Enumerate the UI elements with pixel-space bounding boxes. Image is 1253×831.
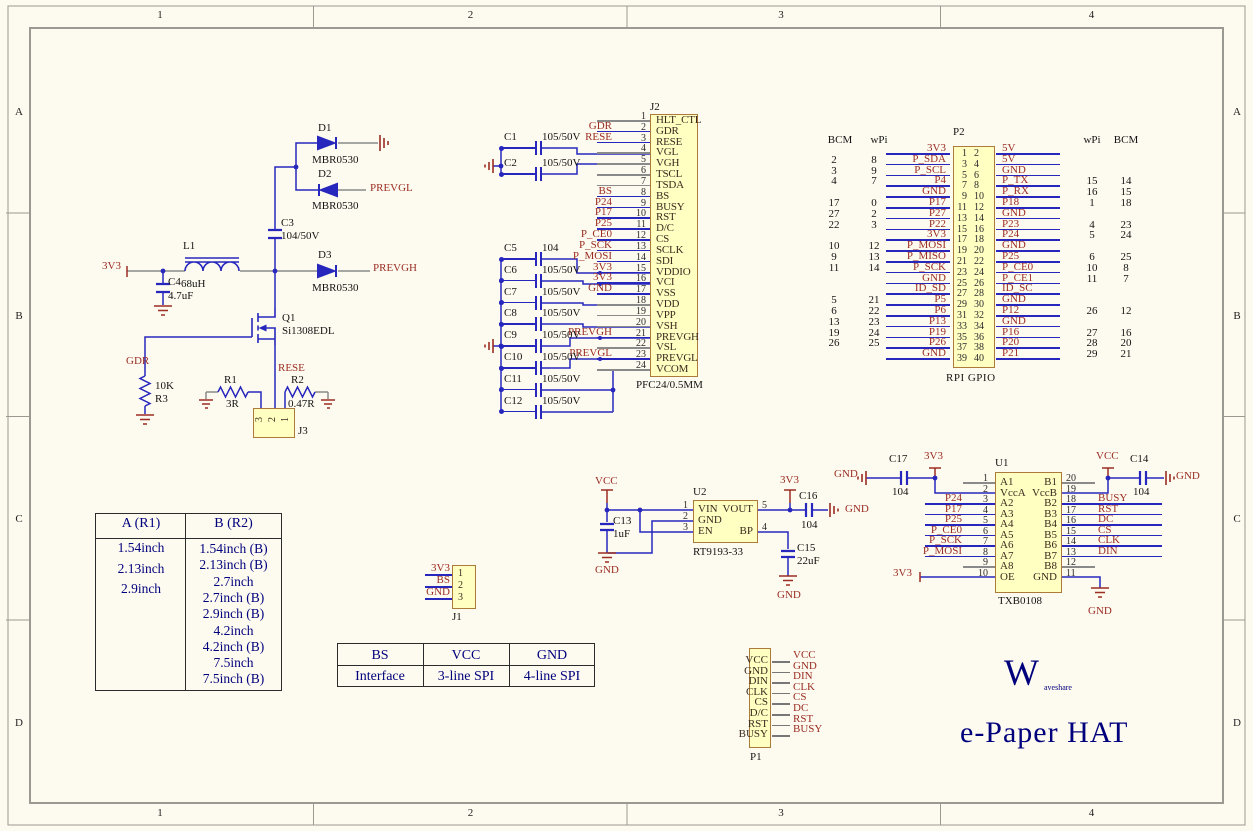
designator-u2: U2	[693, 487, 706, 498]
value-r1: 3R	[226, 399, 239, 410]
net-label-3v3-u2: 3V3	[780, 475, 799, 486]
capacitor-left-wire	[501, 258, 535, 260]
capacitor-value: 105/50V	[542, 132, 581, 143]
size-option-b: 2.13inch (B)	[186, 557, 281, 573]
frame-column-label-bottom: 2	[457, 807, 485, 819]
frame-row-label-right: D	[1227, 717, 1247, 729]
frame-row-label-left: C	[9, 513, 29, 525]
net-label-gnd-c17: GND	[834, 469, 858, 480]
u2-right-pin-number: 5	[762, 500, 767, 511]
frame-column-label-top: 1	[146, 9, 174, 21]
frame-row-label-right: A	[1227, 106, 1247, 118]
u1-right-pin-row: 11 GND	[1040, 567, 1220, 589]
capacitor-designator: C11	[504, 374, 522, 385]
j2-pin-name: VCOM	[656, 364, 688, 375]
capacitor-left-wire	[501, 345, 535, 347]
size-option-a: 2.9inch	[97, 581, 185, 597]
j3-pin-number: 2	[267, 417, 278, 422]
capacitor-left-wire	[501, 323, 535, 325]
capacitor-plate	[540, 405, 542, 419]
capacitor-value: 105/50V	[542, 308, 581, 319]
size-option-a: 2.13inch	[97, 561, 185, 577]
size-option-b: 2.9inch (B)	[186, 606, 281, 622]
connector-j3-body	[253, 408, 295, 438]
j1-net-label: GND	[426, 587, 450, 598]
frame-column-label-bottom: 4	[1078, 807, 1106, 819]
u1-right-net-label: DIN	[1098, 546, 1118, 557]
capacitor-left-wire	[501, 147, 535, 149]
bs-table-header-cell: BS	[337, 648, 423, 664]
j3-pin-number: 1	[280, 417, 291, 422]
u2-right-pin-row: 4 BP	[745, 521, 835, 543]
designator-r1: R1	[224, 375, 237, 386]
u2-right-pin-name: BP	[740, 526, 753, 537]
p2-bcm-right: 21	[1112, 349, 1140, 360]
designator-c15: C15	[797, 543, 815, 554]
capacitor-designator: C10	[504, 352, 522, 363]
u1-right-pin-number: 11	[1066, 568, 1076, 579]
capacitor-value: 105/50V	[542, 352, 581, 363]
value-u2: RT9193-33	[693, 547, 743, 558]
capacitor-plate	[535, 167, 537, 181]
net-label-vcc-u1: VCC	[1096, 451, 1119, 462]
designator-r3: R3	[155, 394, 168, 405]
value-u1: TXB0108	[998, 596, 1042, 607]
value-c3: 104/50V	[281, 231, 320, 242]
bs-table-value-cell: Interface	[337, 669, 423, 685]
schematic-sheet: 3V3 C4 4.7uF L1 68uH C3 104/50V D1 MBR05…	[0, 0, 1253, 831]
sheet-title: e-Paper HAT	[960, 716, 1128, 750]
frame-column-label-bottom: 1	[146, 807, 174, 819]
bs-table-value-cell: 4-line SPI	[509, 669, 595, 685]
size-option-b: 2.7inch	[186, 574, 281, 590]
capacitor-plate	[535, 141, 537, 155]
capacitor-designator: C9	[504, 330, 517, 341]
u1-left-pin-name: OE	[1000, 572, 1015, 583]
frame-column-label-top: 3	[767, 9, 795, 21]
net-label-gnd-c13: GND	[595, 565, 619, 576]
value-l1: 68uH	[181, 279, 205, 290]
capacitor-left-wire	[501, 411, 535, 413]
net-label-3v3-in: 3V3	[102, 261, 121, 272]
capacitor-left-wire	[501, 389, 535, 391]
capacitor-designator: C2	[504, 158, 517, 169]
j3-pin-number: 3	[254, 417, 265, 422]
frame-row-label-right: C	[1227, 513, 1247, 525]
capacitor-designator: C12	[504, 396, 522, 407]
p2-wire-left	[886, 358, 950, 360]
net-label-3v3-u1: 3V3	[924, 451, 943, 462]
size-option-b: 7.5inch	[186, 655, 281, 671]
designator-c4: C4	[168, 277, 181, 288]
capacitor-designator: C6	[504, 265, 517, 276]
capacitor-plate	[540, 141, 542, 155]
cap-bank1-row: C2 105/50V	[480, 158, 555, 188]
p2-wpi-right: 29	[1078, 349, 1106, 360]
size-table-header-a: A (R1)	[97, 518, 185, 529]
size-option-a: 1.54inch	[97, 540, 185, 556]
size-option-b: 1.54inch (B)	[186, 541, 281, 557]
j1-net-label: 3V3	[431, 563, 450, 574]
p1-net-label: BUSY	[793, 724, 822, 735]
net-label-gnd-c16: GND	[845, 504, 869, 515]
size-option-b: 4.2inch	[186, 623, 281, 639]
cap-bank2-row: C12 105/50V	[480, 396, 555, 426]
inductor-symbol	[185, 258, 239, 271]
designator-c17: C17	[889, 454, 907, 465]
u2-left-pin-name: EN	[698, 526, 713, 537]
designator-j3: J3	[298, 426, 308, 437]
j2-pin-wire	[597, 369, 650, 371]
net-label-prevgh: PREVGH	[373, 263, 417, 274]
capacitor-left-wire	[501, 173, 535, 175]
p1-pin-stub	[772, 735, 790, 737]
u1-left-pin-number: 10	[970, 568, 988, 579]
size-option-b: 2.7inch (B)	[186, 590, 281, 606]
capacitor-value: 105/50V	[542, 396, 581, 407]
net-label-prevgl: PREVGL	[370, 183, 413, 194]
designator-p1: P1	[750, 752, 762, 763]
j1-pin-wire	[425, 598, 452, 600]
capacitor-left-wire	[501, 302, 535, 304]
j1-pin-number: 3	[458, 592, 463, 603]
p2-net-right: P21	[1002, 348, 1019, 359]
designator-q1: Q1	[282, 313, 295, 324]
bs-table-value-cell: 3-line SPI	[423, 669, 509, 685]
brand-logo-w: W	[1004, 652, 1039, 695]
capacitor-designator: C7	[504, 287, 517, 298]
capacitor-plate	[535, 405, 537, 419]
p2-pin-row: GND 39 40 P21 29 21	[810, 348, 1140, 370]
net-label-gdr: GDR	[126, 356, 149, 367]
j1-pin-row: GND 3	[400, 588, 480, 610]
capacitor-left-wire	[501, 280, 535, 282]
value-d3: MBR0530	[312, 283, 358, 294]
value-d1: MBR0530	[312, 155, 358, 166]
frame-row-label-left: A	[9, 106, 29, 118]
capacitor-designator: C8	[504, 308, 517, 319]
frame-row-label-left: B	[9, 310, 29, 322]
size-option-b: 4.2inch (B)	[186, 639, 281, 655]
value-c4: 4.7uF	[168, 291, 193, 302]
capacitor-value: 105/50V	[542, 374, 581, 385]
p2-pin-even: 40	[974, 353, 992, 364]
value-r2: 0.47R	[288, 399, 315, 410]
frame-column-label-bottom: 3	[767, 807, 795, 819]
p1-pin-row: BUSY BUSY	[700, 725, 830, 747]
mosfet-symbol	[252, 308, 275, 345]
capacitor-designator: C5	[504, 243, 517, 254]
capacitor-left-wire	[501, 367, 535, 369]
j1-net-label: BS	[437, 575, 450, 586]
bs-table-divider-h	[337, 665, 595, 666]
designator-d1: D1	[318, 123, 331, 134]
bs-table-header-cell: GND	[509, 648, 595, 664]
net-label-gnd-c15: GND	[777, 590, 801, 601]
value-d2: MBR0530	[312, 201, 358, 212]
frame-row-label-left: D	[9, 717, 29, 729]
u2-left-pin-row: 3 EN	[600, 521, 730, 543]
capacitor-value: 104	[542, 243, 559, 254]
u1-right-pin-name: GND	[1033, 572, 1057, 583]
designator-l1: L1	[183, 241, 195, 252]
size-table-header-b: B (R2)	[186, 518, 281, 529]
capacitor-plate	[540, 167, 542, 181]
brand-logo-rest: aveshare	[1044, 683, 1072, 692]
value-r3: 10K	[155, 381, 174, 392]
designator-r2: R2	[291, 375, 304, 386]
capacitor-value: 105/50V	[542, 287, 581, 298]
designator-c3: C3	[281, 218, 294, 229]
value-q1: Si1308EDL	[282, 326, 335, 337]
capacitor-value: 105/50V	[542, 158, 581, 169]
value-j2-footprint: PFC24/0.5MM	[636, 380, 703, 391]
bs-table-header-cell: VCC	[423, 648, 509, 664]
capacitor-value: 105/50V	[542, 265, 581, 276]
designator-d2: D2	[318, 169, 331, 180]
u2-right-pin-name: VOUT	[722, 504, 753, 515]
net-label-vcc-u2: VCC	[595, 476, 618, 487]
size-table-divider-h	[95, 538, 282, 539]
frame-column-label-top: 2	[457, 9, 485, 21]
size-option-b: 7.5inch (B)	[186, 671, 281, 687]
designator-p2: P2	[953, 127, 965, 138]
designator-u1: U1	[995, 458, 1008, 469]
u2-right-pin-row: 5 VOUT	[745, 499, 835, 521]
frame-column-label-top: 4	[1078, 9, 1106, 21]
capacitor-value: 105/50V	[542, 330, 581, 341]
frame-row-label-right: B	[1227, 310, 1247, 322]
designator-j1: J1	[452, 612, 462, 623]
p1-pin-name: BUSY	[739, 729, 768, 740]
u2-right-pin-number: 4	[762, 522, 767, 533]
label-rpi-gpio: RPI GPIO	[946, 373, 996, 384]
net-label-rese: RESE	[278, 363, 305, 374]
designator-c14: C14	[1130, 454, 1148, 465]
designator-d3: D3	[318, 250, 331, 261]
value-c15: 22uF	[797, 556, 820, 567]
net-label-gnd-u1: GND	[1088, 606, 1112, 617]
u2-left-pin-number: 3	[666, 522, 688, 533]
capacitor-designator: C1	[504, 132, 517, 143]
p2-pin-odd: 39	[949, 353, 967, 364]
